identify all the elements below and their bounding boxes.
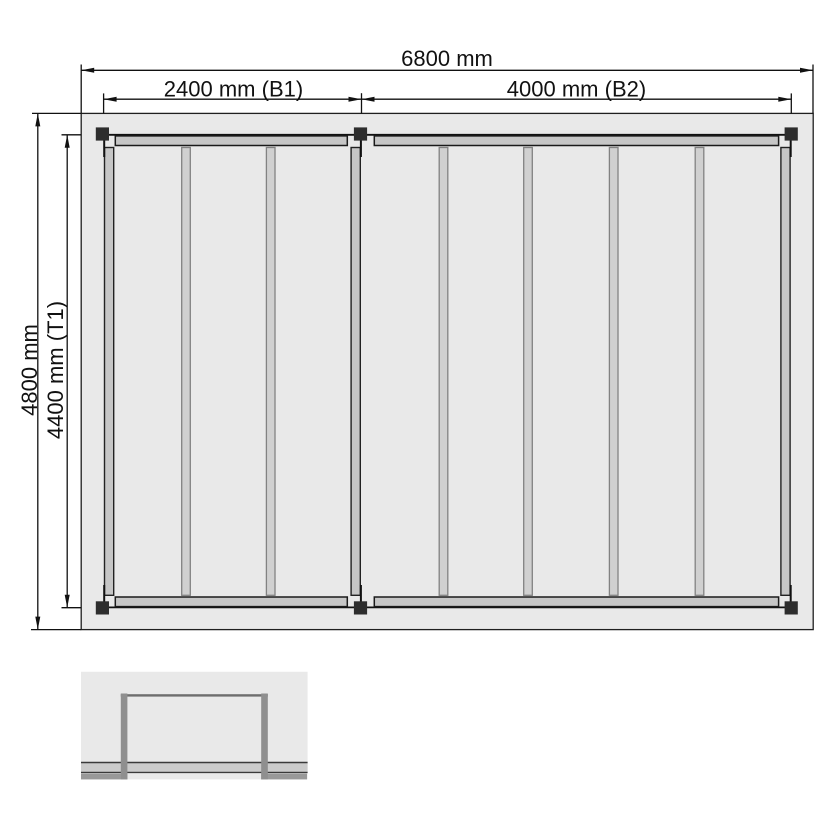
svg-text:4400 mm (T1): 4400 mm (T1) bbox=[43, 301, 68, 439]
svg-text:6800 mm: 6800 mm bbox=[401, 46, 493, 71]
svg-text:4000 mm (B2): 4000 mm (B2) bbox=[507, 77, 646, 102]
svg-text:4800 mm: 4800 mm bbox=[17, 324, 42, 416]
svg-text:2400 mm (B1): 2400 mm (B1) bbox=[164, 77, 303, 102]
